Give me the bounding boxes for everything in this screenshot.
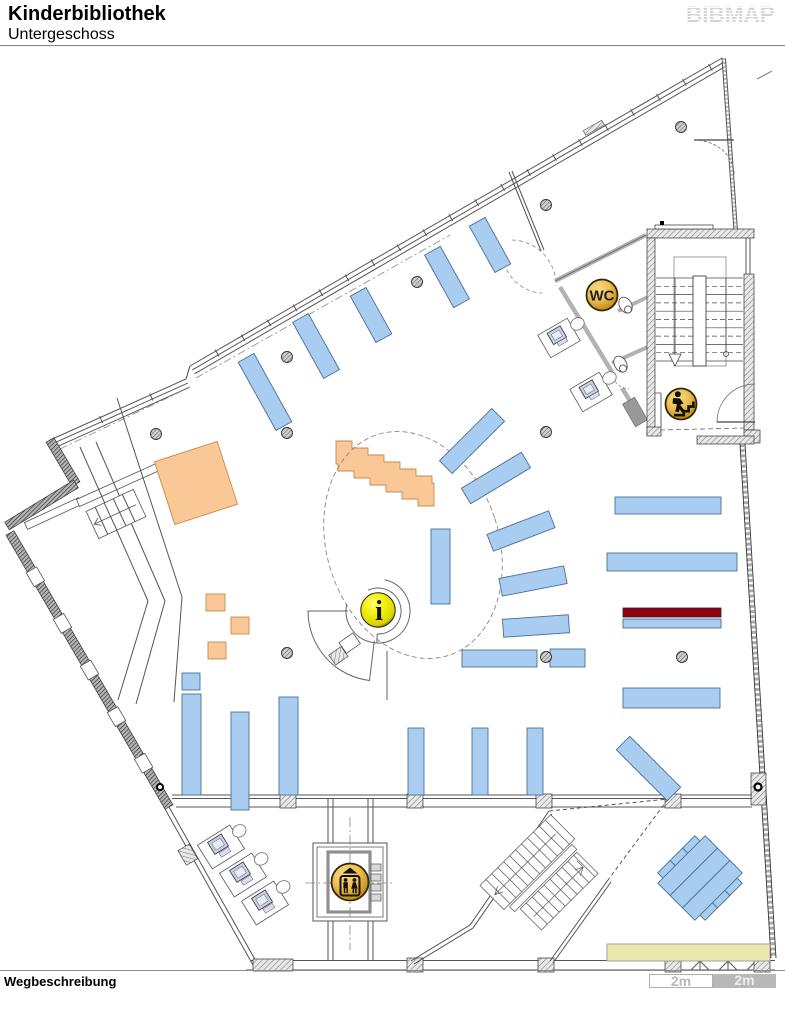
svg-text:i: i	[375, 596, 383, 627]
svg-text:WC: WC	[590, 288, 615, 305]
